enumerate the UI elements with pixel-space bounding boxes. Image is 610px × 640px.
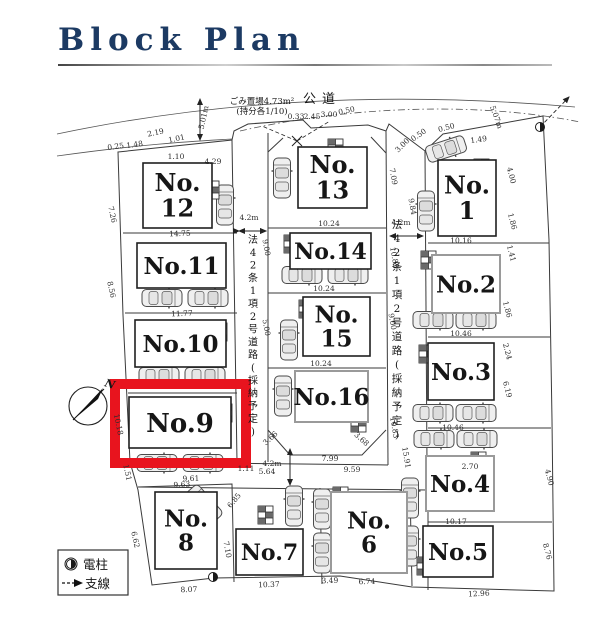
lot-6: No.6 xyxy=(331,492,407,573)
dimension-label: 9.00 xyxy=(261,239,273,257)
lot-label-3: No.3 xyxy=(431,359,491,386)
dimension-label: 10.37 xyxy=(258,580,280,590)
garbage-share-label: (持分各1/10) xyxy=(236,106,287,117)
lot-16: No.16 xyxy=(294,371,370,422)
dimension-label: 9.63 xyxy=(173,480,190,490)
lot-label-6: No. xyxy=(347,507,391,534)
public-road-label: 公道 xyxy=(303,92,341,107)
dimension-label: 10.16 xyxy=(450,236,472,245)
dimension-label: 0.33 xyxy=(288,112,305,121)
lot-label-15: 15 xyxy=(320,326,352,353)
dimension-label: 10.46 xyxy=(450,329,472,338)
dimension-label: 5.01m xyxy=(197,105,211,130)
dimension-label: 14.75 xyxy=(169,229,191,239)
lot-label-11: No.11 xyxy=(144,253,220,280)
lot-label-15: No. xyxy=(315,301,359,328)
lot-label-12: 12 xyxy=(161,194,194,223)
lot-12: No.12 xyxy=(143,163,212,228)
dimension-label: 5.00 xyxy=(261,319,273,337)
utility-pole-icon xyxy=(536,123,545,132)
dimension-label: 10.24 xyxy=(310,359,332,368)
lot-14: No.14 xyxy=(290,233,371,269)
dimension-label: 7.09 xyxy=(388,168,400,186)
car-icon xyxy=(312,533,333,573)
dimension-label: 0.25 xyxy=(107,141,125,152)
dimension-label: 10.17 xyxy=(445,517,467,526)
block-plan-drawing: No.1No.2No.3No.4No.5No.6No.7No.8No.9No.1… xyxy=(0,0,610,640)
car-icon xyxy=(456,403,496,424)
dimension-label: 2.19 xyxy=(146,126,164,138)
dimension-label: 2.70 xyxy=(462,462,479,471)
dimension-label: 1.01 xyxy=(167,132,185,144)
legend-pole-label: 電柱 xyxy=(83,557,108,572)
lot-15: No.15 xyxy=(303,297,370,356)
dimension-label: 3.49 xyxy=(321,576,338,586)
legend-pole-icon xyxy=(67,560,76,569)
dimension-label: 4.2m xyxy=(239,213,258,222)
dimension-label: 1.10 xyxy=(168,152,185,161)
lot-7: No.7 xyxy=(236,529,303,575)
dimension-label: 8.56 xyxy=(105,280,117,298)
dimension-label: 7.99 xyxy=(322,454,339,463)
dimension-label: 8.07 xyxy=(180,585,197,595)
lot-11: No.11 xyxy=(137,243,226,288)
lot-9: No.9 xyxy=(129,397,231,448)
dimension-label: 1.86 xyxy=(501,300,514,319)
dimension-label: 7.10 xyxy=(222,541,234,559)
lot-label-2: No.2 xyxy=(436,271,496,298)
legend-wire-label: 支線 xyxy=(85,576,111,591)
dimension-label: 5.07m xyxy=(488,104,505,129)
dimension-label: 12.96 xyxy=(468,588,490,598)
dimension-label: 0.50 xyxy=(409,126,428,143)
road-name-label-left: 法42条1項2号道路(採納予定) xyxy=(248,233,258,438)
dimension-label: 4.2m xyxy=(262,459,281,468)
dimension-label: 6.85 xyxy=(225,491,243,510)
dimension-label: 3.66 xyxy=(261,429,280,447)
dimension-label: 8.76 xyxy=(541,542,554,561)
dimension-label: 6.74 xyxy=(358,577,375,587)
lot-label-5: No.5 xyxy=(428,539,488,566)
dimension-label: 1.41 xyxy=(505,244,518,262)
lot-label-8: No. xyxy=(164,505,208,532)
dimension-label: 4.90 xyxy=(543,468,556,487)
lot-label-16: No.16 xyxy=(294,384,370,411)
anchor-x-mark xyxy=(292,136,302,146)
dimension-label: 15.91 xyxy=(400,446,413,469)
garbage-area-label: ごみ置場4.73m² xyxy=(230,96,294,107)
lot-label-6: 6 xyxy=(361,532,377,559)
dimension-label: 6.19 xyxy=(501,380,514,399)
dimension-label: 5.64 xyxy=(259,467,276,476)
dimension-label: 10.46 xyxy=(442,423,464,432)
dimension-label: 10.24 xyxy=(313,284,335,293)
lot-10: No.10 xyxy=(135,320,226,367)
dimension-label: 4.00 xyxy=(505,166,518,185)
dimension-label: 10.24 xyxy=(318,219,340,228)
dimension-label: 11.77 xyxy=(171,309,193,319)
car-icon xyxy=(312,489,333,529)
car-icon xyxy=(142,288,182,309)
dimension-label: 4.29 xyxy=(205,157,222,166)
dimension-label: 9.59 xyxy=(344,465,361,474)
lot-label-9: No.9 xyxy=(146,409,214,439)
dimension-label: 3.68 xyxy=(352,430,371,448)
car-icon xyxy=(413,403,453,424)
lot-3: No.3 xyxy=(428,343,494,400)
car-icon xyxy=(188,288,228,309)
lot-label-1: 1 xyxy=(459,196,476,225)
lot-label-4: No.4 xyxy=(430,471,490,498)
dimension-label: 2.45 xyxy=(304,112,321,121)
lot-4: No.4 xyxy=(426,456,494,511)
lot-label-13: 13 xyxy=(316,176,349,205)
dimension-label: 9.84 xyxy=(407,198,419,216)
car-icon xyxy=(284,486,305,526)
block-plan-page: Block Plan xyxy=(0,0,610,640)
utility-pole-icon xyxy=(209,573,218,582)
dimension-label: 6.62 xyxy=(129,530,141,548)
dimension-label: 1.49 xyxy=(470,134,488,145)
lot-label-10: No.10 xyxy=(143,331,219,358)
dimension-label: 2.24 xyxy=(501,342,514,361)
dimension-label: 1.86 xyxy=(506,212,519,231)
lot-label-14: No.14 xyxy=(294,239,367,265)
car-icon xyxy=(273,376,294,416)
lot-1: No.1 xyxy=(438,160,496,236)
car-icon xyxy=(272,158,293,198)
lot-2: No.2 xyxy=(432,255,500,313)
dimension-label: 3.00 xyxy=(321,110,338,119)
lot-label-8: 8 xyxy=(178,530,194,557)
map-legend: 電柱 支線 xyxy=(58,550,128,595)
building-grid-icon xyxy=(258,506,273,524)
lot-label-7: No.7 xyxy=(241,540,298,566)
lot-8: No.8 xyxy=(155,492,217,569)
lot-5: No.5 xyxy=(423,526,493,577)
lot-13: No.13 xyxy=(298,147,367,208)
car-icon xyxy=(279,320,300,360)
dimension-label: 1.11 xyxy=(238,464,255,473)
dimension-label: 1.48 xyxy=(126,139,144,150)
dimension-label: 7.26 xyxy=(106,205,118,223)
